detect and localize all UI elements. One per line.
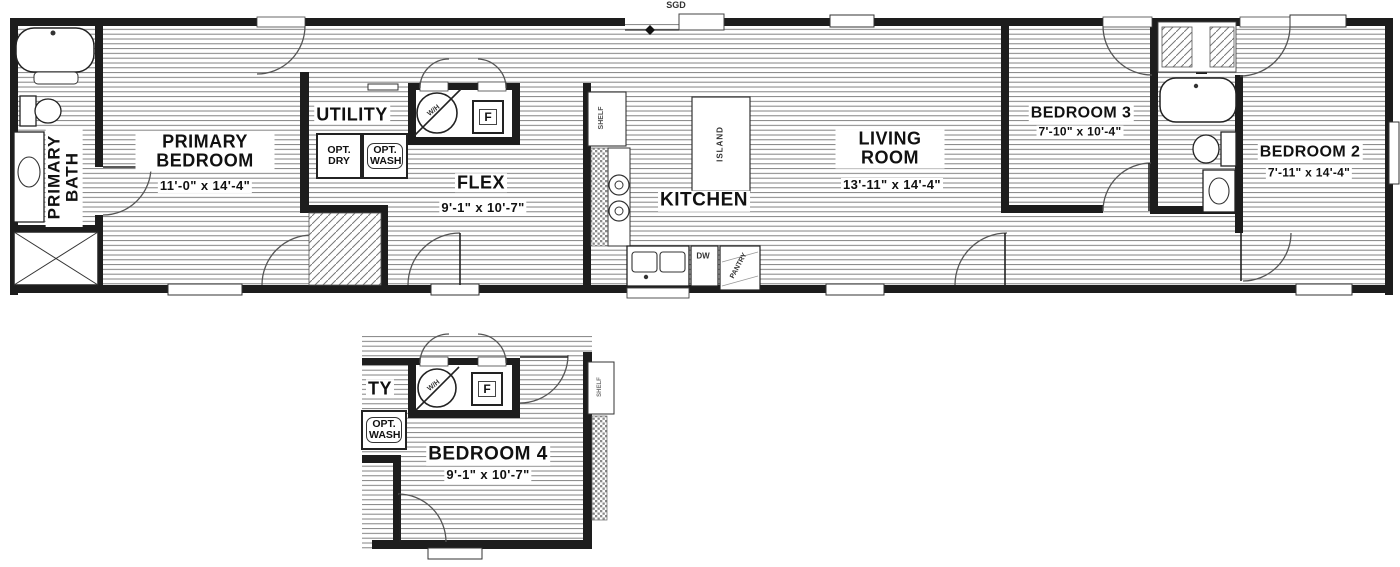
- room-dims-primary-bedroom: 11'-0" x 14'-4": [158, 179, 252, 193]
- furnace-label: F: [479, 109, 496, 125]
- room-dims-living-room: 13'-11" x 14'-4": [841, 178, 943, 192]
- tub-faucet: [51, 31, 56, 36]
- room-dims-bedroom-2: 7'-11" x 14'-4": [1266, 167, 1352, 180]
- kitchen-counter-hatch: [591, 148, 608, 246]
- inset-utility-partial-label: TY: [366, 379, 394, 398]
- kitchen-range-cabinet: [608, 148, 630, 246]
- sink-bay-bump: [627, 288, 689, 298]
- room-label-bedroom-4: BEDROOM 4: [426, 445, 550, 466]
- sgd-label: SGD: [664, 1, 688, 11]
- inset-opt-wash-label: OPT. WASH: [366, 417, 402, 443]
- room-label-living-room: LIVING ROOM: [836, 130, 945, 169]
- hall-toilet-bowl: [1193, 135, 1219, 163]
- primary-closet: [309, 213, 381, 285]
- closet-panel: [1210, 27, 1234, 67]
- opt-dryer-box: OPT. DRY: [316, 133, 362, 179]
- room-label-flex: FLEX: [455, 173, 507, 192]
- room-label-primary-bedroom: PRIMARY BEDROOM: [136, 133, 275, 172]
- room-dims-bedroom-3: 7'-10" x 10'-4": [1037, 126, 1124, 139]
- primary-toilet-tank: [20, 96, 36, 126]
- opt-dry-label: OPT. DRY: [322, 145, 356, 167]
- room-label-kitchen: KITCHEN: [658, 191, 750, 212]
- shelf-label: SHELF: [598, 105, 606, 132]
- hall-sink: [1209, 178, 1229, 204]
- inset-furnace-box: F: [471, 372, 503, 406]
- utility-shelf-bar: [368, 84, 398, 90]
- closet-panel: [1162, 27, 1192, 67]
- dishwasher-label: DW: [694, 253, 711, 262]
- room-label-bedroom-2: BEDROOM 2: [1258, 143, 1363, 160]
- inset-step: [428, 548, 482, 559]
- sink-basin: [632, 252, 657, 272]
- room-dims-flex: 9'-1" x 10'-7": [439, 201, 526, 215]
- burner-icon: [609, 175, 629, 195]
- inset-furnace-label: F: [478, 381, 495, 397]
- inset-opt-washer-box: OPT. WASH: [361, 410, 407, 450]
- room-label-utility: UTILITY: [314, 105, 390, 124]
- floorplan-page: SGD PRIMARY BATH PRIMARY BEDROOM 11'-0" …: [0, 0, 1400, 567]
- room-label-primary-bath: PRIMARY BATH: [46, 127, 83, 227]
- room-dims-bedroom-4: 9'-1" x 10'-7": [444, 468, 531, 482]
- primary-sink: [18, 157, 40, 187]
- furnace-box: F: [472, 100, 504, 134]
- opt-washer-box: OPT. WASH: [362, 133, 408, 179]
- kitchen-shelf-unit: [588, 92, 626, 146]
- floorplan-drawing: [0, 0, 1400, 567]
- hall-tub-faucet: [1194, 84, 1198, 88]
- primary-tub: [16, 28, 94, 72]
- island-label: ISLAND: [717, 124, 726, 164]
- primary-toilet-bowl: [35, 99, 61, 123]
- primary-tub-ledge: [34, 72, 78, 84]
- burner-icon: [609, 201, 629, 221]
- sink-faucet: [644, 275, 648, 279]
- room-label-bedroom-3: BEDROOM 3: [1029, 104, 1134, 121]
- hall-tub: [1160, 78, 1236, 122]
- inset-shelf-label: SHELF: [597, 375, 603, 399]
- inset-counter-hatch: [592, 416, 607, 520]
- opt-wash-label: OPT. WASH: [367, 143, 403, 169]
- hall-toilet-tank: [1221, 132, 1236, 166]
- sink-basin: [660, 252, 685, 272]
